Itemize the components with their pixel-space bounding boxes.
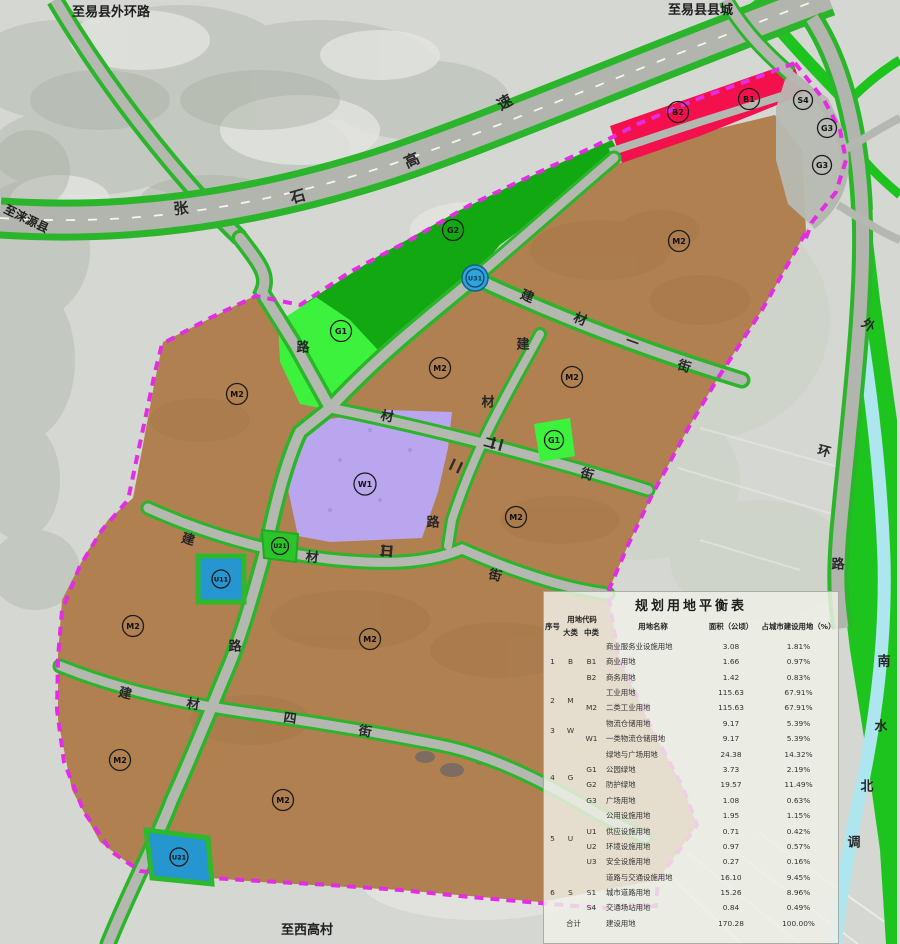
landuse-row: U2环境设施用地0.970.57% — [544, 839, 838, 854]
svg-text:U21: U21 — [273, 543, 286, 550]
map-canvas: 张石高速建材一街材二街建材三街建材四街建材路路路外环路南水北调 M2M2M2M2… — [0, 0, 900, 944]
land-balance-table: 规划用地平衡表 序号 用地代码 用地名称 面积（公顷） 占城市建设用地（%） 大… — [543, 591, 839, 944]
jiancai-3rd-street-char: 三 — [379, 544, 393, 560]
south-north-water-canal-char: 南 — [877, 654, 890, 670]
landuse-row: 3W物流仓储用地9.175.39% — [544, 716, 838, 731]
landuse-row: U3安全设施用地0.270.16% — [544, 854, 838, 869]
jiancai-road-char: 材 — [481, 395, 494, 411]
svg-text:M2: M2 — [672, 237, 686, 246]
col-area: 面积（公顷） — [703, 614, 759, 639]
to-yixian-county-town-label: 至易县县城 — [668, 2, 733, 18]
landuse-row: B1商业用地1.660.97% — [544, 654, 838, 669]
col-major: 大类 — [561, 627, 580, 640]
to-yixian-outer-ring-label: 至易县外环路 — [72, 4, 151, 20]
landuse-row: 4G绿地与广场用地24.3814.32% — [544, 747, 838, 762]
jiancai-road-char: 路 — [426, 515, 440, 531]
landuse-row: 6S道路与交通设施用地16.109.45% — [544, 870, 838, 885]
landuse-row: 1B商业服务业设施用地3.081.81% — [544, 639, 838, 654]
landuse-row: M2二类工业用地115.6367.91% — [544, 701, 838, 716]
col-no: 序号 — [544, 614, 561, 639]
landuse-row: W1一类物流仓储用地9.175.39% — [544, 731, 838, 746]
col-code: 用地代码 — [561, 614, 603, 627]
landuse-row: G3广场用地1.080.63% — [544, 793, 838, 808]
col-pct: 占城市建设用地（%） — [759, 614, 838, 639]
svg-text:M2: M2 — [509, 513, 523, 522]
outer-ring-road-char: 路 — [831, 557, 845, 573]
south-north-water-canal-char: 水 — [874, 719, 888, 735]
svg-text:U21: U21 — [172, 854, 187, 862]
svg-text:G2: G2 — [447, 226, 459, 235]
svg-text:W1: W1 — [358, 480, 373, 489]
svg-text:M2: M2 — [363, 635, 377, 644]
col-mid: 中类 — [580, 627, 603, 640]
landuse-row: 2M工业用地115.6367.91% — [544, 685, 838, 700]
svg-text:G1: G1 — [548, 436, 561, 445]
table-header: 序号 用地代码 用地名称 面积（公顷） 占城市建设用地（%） 大类 中类 — [544, 614, 838, 639]
svg-text:M2: M2 — [565, 373, 579, 382]
jiancai-3rd-street-char: 材 — [305, 549, 319, 566]
col-name: 用地名称 — [603, 614, 703, 639]
svg-text:G3: G3 — [816, 161, 828, 170]
landuse-row: U1供应设施用地0.710.42% — [544, 824, 838, 839]
jiancai-4th-street-char: 材 — [186, 696, 201, 714]
south-north-water-canal-char: 调 — [847, 836, 860, 851]
landuse-row: 5U公用设施用地1.951.15% — [544, 808, 838, 823]
svg-text:M2: M2 — [126, 622, 140, 631]
svg-text:M2: M2 — [230, 390, 244, 399]
south-north-water-canal-char: 北 — [860, 780, 873, 795]
landuse-row: G1公园绿地3.732.19% — [544, 762, 838, 777]
total-row: 合计建设用地170.28100.00% — [544, 916, 838, 931]
landuse-row: S1城市道路用地15.268.96% — [544, 885, 838, 900]
table-rows: 1B商业服务业设施用地3.081.81%B1商业用地1.660.97%B2商务用… — [544, 639, 838, 931]
svg-text:M2: M2 — [433, 364, 447, 373]
jiancai-road-char: 建 — [516, 337, 529, 353]
svg-text:U11: U11 — [214, 576, 229, 584]
jiancai-4th-street-char: 街 — [356, 722, 373, 740]
table-title: 规划用地平衡表 — [544, 592, 838, 614]
svg-text:B1: B1 — [743, 95, 755, 104]
landuse-row: B2商务用地1.420.83% — [544, 670, 838, 685]
svg-text:S4: S4 — [797, 96, 809, 105]
svg-text:B2: B2 — [672, 108, 684, 117]
zhangshi-expressway-char: 张 — [173, 199, 191, 219]
svg-text:G1: G1 — [335, 327, 348, 336]
to-xigao-village-label: 至西高村 — [281, 922, 333, 938]
north-south-road-char: 路 — [228, 639, 242, 655]
landuse-row: G2防护绿地19.5711.49% — [544, 778, 838, 793]
jiancai-4th-street-char: 四 — [283, 711, 298, 728]
jiancai-2nd-street-char: 材 — [379, 407, 395, 425]
svg-text:M2: M2 — [276, 796, 290, 805]
landuse-row: S4交通场站用地0.840.49% — [544, 901, 838, 916]
svg-text:M2: M2 — [113, 756, 127, 765]
north-south-road-char: 路 — [296, 340, 310, 356]
svg-text:U31: U31 — [468, 275, 483, 283]
svg-text:G3: G3 — [821, 124, 833, 133]
